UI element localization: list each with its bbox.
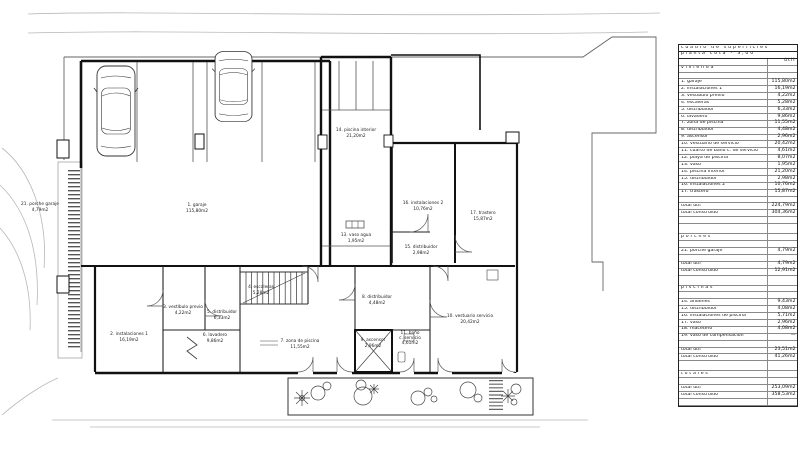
room-area: 1,95m2	[348, 238, 365, 244]
row-label: totales	[679, 372, 767, 377]
room-area: 2,96m2	[365, 343, 382, 349]
row-value: 41,26m2	[767, 354, 797, 360]
row-label: 15. distribuidor	[679, 177, 767, 182]
row-label: 16. instalaciones 2	[679, 183, 767, 188]
row-value	[767, 341, 797, 347]
row-value	[767, 73, 797, 79]
row-label: 15. distribuidor	[679, 307, 767, 312]
table-row: vivienda	[679, 66, 797, 73]
table-row	[679, 361, 797, 371]
table-row: total construido12,91m2	[679, 269, 797, 276]
row-label: total construido	[679, 393, 767, 398]
room-area: 4,61m2	[402, 340, 419, 346]
row-value	[767, 197, 797, 203]
row-value: 4,79m2	[767, 248, 797, 254]
table-row: total construido41,26m2	[679, 354, 797, 361]
room-label: 15. distribuidor	[405, 244, 438, 250]
building-walls	[81, 55, 519, 373]
row-value	[767, 371, 797, 377]
row-value: 16,19m2	[767, 86, 797, 92]
row-value: útil	[767, 59, 797, 65]
room-label: 9. ascensor	[361, 337, 386, 343]
garage-porch-ramp	[57, 140, 82, 358]
car-icon	[212, 51, 255, 121]
garage-column	[195, 134, 204, 149]
row-value	[767, 361, 797, 370]
floor-plan-canvas: 1. garaje 115,80m2 2. instalaciones 1 16…	[0, 0, 672, 455]
row-value: 20,42m2	[767, 141, 797, 147]
row-value	[767, 276, 797, 285]
row-label: 12. playa de piscina	[679, 156, 767, 161]
room-area: 115,80m2	[186, 208, 208, 214]
row-label: 6. lavadero	[679, 115, 767, 120]
row-label: 16. instalaciones de piscina	[679, 314, 767, 319]
garage	[94, 51, 315, 162]
row-value	[767, 241, 797, 247]
row-label: 7. zona de piscina	[679, 121, 767, 126]
room-label: 6. lavadero	[203, 332, 228, 338]
row-label: 21. porche garaje	[679, 249, 767, 254]
row-value: 5,28m2	[767, 100, 797, 106]
room-area: 21,20m2	[346, 133, 365, 139]
room-area: 5,28m2	[253, 290, 270, 296]
room-area: 2,98m2	[413, 250, 430, 256]
row-label: 2. instalaciones 1	[679, 87, 767, 92]
table-row: planta cota - 3,00	[679, 52, 797, 59]
row-value: 4,61m2	[767, 148, 797, 154]
table-row: 13. vaso1,95m2	[679, 162, 797, 169]
room-label: 17. trastero	[470, 210, 496, 216]
row-label: 14. piscina interior	[679, 170, 767, 175]
room-label: 4. escaleras	[248, 284, 275, 290]
table-row: cuadro de superficies	[679, 45, 797, 52]
row-label: 5. distribuidor	[679, 108, 767, 113]
room-area: 11,55m2	[290, 344, 309, 350]
row-value: 2,96m2	[767, 320, 797, 326]
plant-icon	[411, 388, 437, 405]
row-label: 11. cuarto de baño c. de servicio	[679, 149, 767, 154]
terrace-planters	[288, 378, 533, 415]
row-value	[767, 224, 797, 233]
row-value: 358,53m2	[767, 392, 797, 398]
site-boundary	[64, 37, 656, 291]
room-label: 8. distribuidor	[362, 294, 392, 300]
table-row	[679, 399, 797, 406]
row-label: total construido	[679, 211, 767, 216]
row-value	[767, 378, 797, 384]
row-label: cuadro de superficies	[679, 46, 797, 51]
row-label: 17. vaso	[679, 321, 767, 326]
table-row: 17. trastero15,87m2	[679, 190, 797, 197]
row-value	[767, 399, 797, 405]
row-value: 224,79m2	[767, 203, 797, 209]
row-label: planta cota - 3,00	[679, 52, 797, 57]
room-area: 4,48m2	[369, 300, 386, 306]
row-value	[767, 217, 797, 223]
table-row	[679, 241, 797, 248]
row-label: 3. vestíbulo previo	[679, 94, 767, 99]
row-value	[767, 234, 797, 240]
row-value: 23,51m2	[767, 348, 797, 354]
row-label: total útil	[679, 348, 767, 353]
table-row: 18. macetero4,08m2	[679, 327, 797, 334]
room-area: 9,86m2	[207, 338, 224, 344]
room-label: 2. instalaciones 1	[110, 331, 148, 337]
row-value: 253,09m2	[767, 385, 797, 391]
plant-icon	[501, 384, 521, 405]
plant-icon	[354, 380, 379, 405]
room-area: 4,22m2	[175, 310, 192, 316]
row-value: 5,71m2	[767, 313, 797, 319]
row-value: 15,87m2	[767, 190, 797, 196]
room-label: 14. piscina interior	[336, 127, 376, 133]
room-area: 4,79m2	[32, 207, 49, 213]
room-label: 5. distribuidor	[207, 309, 237, 315]
table-row: 16. instalaciones de piscina5,71m2	[679, 313, 797, 320]
table-row: total construido358,53m2	[679, 392, 797, 399]
indoor-pool	[322, 61, 390, 246]
row-label: total construido	[679, 269, 767, 274]
row-label: total útil	[679, 262, 767, 267]
room-label: 10. vestuario servicio	[447, 313, 494, 319]
table-row: 21. porche garaje4,79m2	[679, 248, 797, 255]
table-row: 5. distribuidor6,33m2	[679, 107, 797, 114]
row-value	[767, 255, 797, 261]
room-area: 10,76m2	[413, 206, 432, 212]
row-value: 8,07m2	[767, 155, 797, 161]
room-area: 20,42m2	[460, 319, 479, 325]
row-value: 4,08m2	[767, 306, 797, 312]
room-label: 1. garaje	[187, 202, 206, 208]
room-area: 15,87m2	[473, 216, 492, 222]
room-label: 21. porche garaje	[21, 201, 59, 207]
row-label: 9. ascensor	[679, 135, 767, 140]
row-label: 13. vaso	[679, 163, 767, 168]
row-label: 10. vestuario de servicio	[679, 142, 767, 147]
drawing-sheet: 1. garaje 115,80m2 2. instalaciones 1 16…	[0, 0, 800, 455]
row-label: total útil	[679, 386, 767, 391]
row-label: 19. vaso de compensación	[679, 334, 767, 339]
row-value: 9,43m2	[767, 299, 797, 305]
row-label: 18. macetero	[679, 327, 767, 332]
row-value	[767, 286, 797, 292]
table-row: útil	[679, 59, 797, 66]
row-label: total construido	[679, 355, 767, 360]
row-label: 4. escaleras	[679, 101, 767, 106]
table-row: porches	[679, 234, 797, 241]
row-label: piscinas	[679, 286, 767, 291]
row-value	[767, 66, 797, 72]
table-row	[679, 217, 797, 224]
row-value: 304,36m2	[767, 210, 797, 216]
row-value: 12,91m2	[767, 269, 797, 275]
table-row: totales	[679, 371, 797, 378]
table-row	[679, 276, 797, 286]
row-value: 6,33m2	[767, 107, 797, 113]
surface-table: cuadro de superficiesplanta cota - 3,00ú…	[678, 44, 798, 407]
room-label: 16. instalaciones 2	[403, 200, 444, 206]
table-row: 4. escaleras5,28m2	[679, 100, 797, 107]
room-area: 16,19m2	[119, 337, 138, 343]
table-row	[679, 224, 797, 234]
row-value: 10,76m2	[767, 183, 797, 189]
row-value: 21,20m2	[767, 169, 797, 175]
room-label: 7. zona de piscina	[281, 338, 320, 344]
row-value: 11,55m2	[767, 121, 797, 127]
row-label: 17. trastero	[679, 190, 767, 195]
row-label: total útil	[679, 204, 767, 209]
table-row: 19. vaso de compensación—	[679, 334, 797, 341]
room-label: 13. vaso agua	[341, 232, 372, 238]
row-label: 14. andenes	[679, 300, 767, 305]
table-row: 14. piscina interior21,20m2	[679, 169, 797, 176]
row-value: 9,86m2	[767, 114, 797, 120]
car-icon	[94, 66, 138, 156]
row-value: 4,08m2	[767, 327, 797, 333]
table-row: total construido304,36m2	[679, 210, 797, 217]
row-value: 1,95m2	[767, 162, 797, 168]
row-value: 4,79m2	[767, 262, 797, 268]
plant-icon	[294, 382, 331, 406]
table-row: piscinas	[679, 286, 797, 293]
row-value: 4,48m2	[767, 128, 797, 134]
elevator	[355, 330, 392, 372]
row-label: vivienda	[679, 66, 767, 71]
row-value: 2,96m2	[767, 135, 797, 141]
row-label: 8. distribuidor	[679, 128, 767, 133]
row-label: porches	[679, 235, 767, 240]
table-row: total útil253,09m2	[679, 385, 797, 392]
row-value	[767, 292, 797, 298]
row-value: 4,22m2	[767, 93, 797, 99]
room-area: 6,33m2	[214, 315, 231, 321]
plant-icon	[460, 382, 482, 402]
room-label: 3. vestíbulo previo	[163, 303, 203, 310]
row-value: 115,80m2	[767, 79, 797, 85]
row-value: —	[767, 334, 797, 340]
row-value: 2,98m2	[767, 176, 797, 182]
row-label: 1. garaje	[679, 80, 767, 85]
room-labels: 1. garaje 115,80m2 2. instalaciones 1 16…	[21, 127, 496, 350]
